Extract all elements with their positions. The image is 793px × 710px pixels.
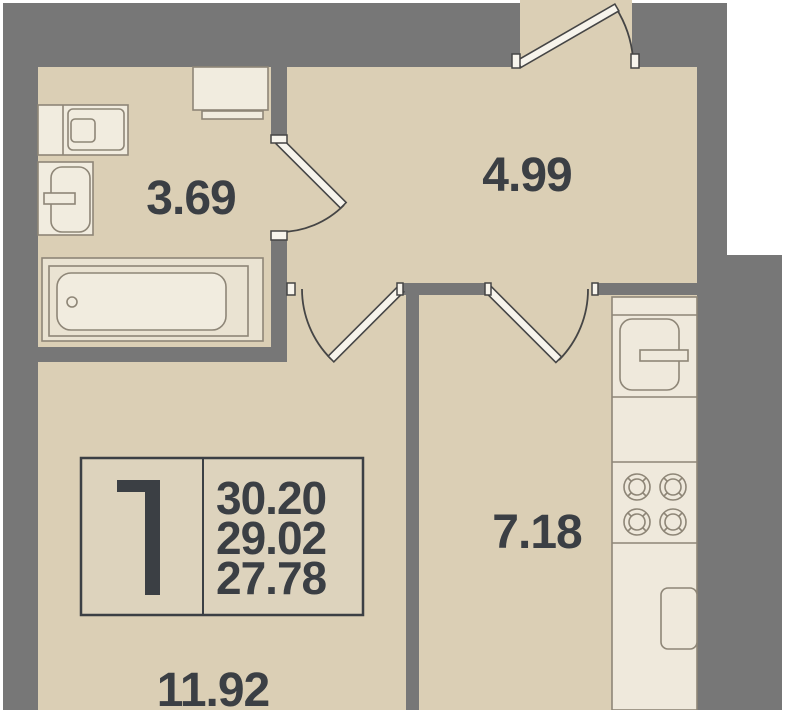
door-jamb	[271, 231, 287, 240]
kitchen-door-opening	[491, 283, 592, 295]
door-jamb	[271, 135, 287, 143]
legend-area-living: 27.78	[216, 552, 327, 604]
bathtub-icon	[42, 258, 263, 341]
fridge-icon	[620, 319, 688, 390]
legend: 30.20 29.02 27.78	[81, 458, 363, 615]
door-jamb	[512, 54, 520, 68]
kitchen-area-label: 7.18	[492, 506, 582, 559]
outside-top-right	[727, 0, 793, 255]
floor-plan-canvas: 30.20 29.02 27.78 3.69 4.99 7.18 11.92	[0, 0, 793, 710]
bathroom-area-label: 3.69	[146, 172, 235, 225]
floor-plan: 30.20 29.02 27.78 3.69 4.99 7.18 11.92	[0, 0, 793, 710]
living-room-area-label: 11.92	[157, 664, 269, 710]
washing-machine-icon	[193, 67, 268, 119]
door-jamb	[485, 283, 491, 295]
door-jamb	[592, 283, 598, 295]
hallway-area-label: 4.99	[482, 149, 571, 202]
kitchen-fixtures	[612, 297, 697, 710]
bathroom-door-opening	[271, 143, 287, 232]
door-jamb	[631, 54, 639, 68]
toilet-icon	[38, 105, 128, 155]
outside-right-margin	[782, 255, 793, 710]
door-jamb	[287, 283, 295, 295]
kitchen-sink-icon	[661, 588, 697, 649]
living-door-opening	[295, 283, 397, 295]
door-jamb	[397, 283, 403, 295]
sink-icon	[38, 162, 93, 235]
